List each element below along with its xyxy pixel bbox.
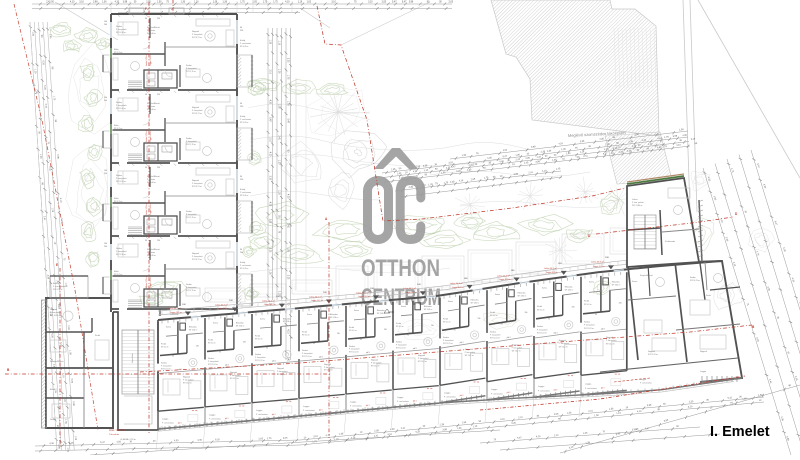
svg-text:WT: 11,76 m²: WT: 11,76 m² [186, 216, 196, 219]
svg-text:Előszoba: Előszoba [283, 318, 292, 320]
svg-text:P: kerámia: P: kerámia [147, 29, 155, 32]
svg-text:240: 240 [104, 100, 107, 102]
svg-text:pld 3: pld 3 [366, 352, 370, 354]
svg-text:Hrsz.: 8173/9: Hrsz.: 8173/9 [109, 428, 125, 432]
svg-text:Erkély: Erkély [240, 115, 245, 118]
svg-text:Loggia 10,9 m²: Loggia 10,9 m² [170, 311, 182, 314]
svg-text:Szoba: Szoba [186, 65, 193, 67]
svg-text:Előtér: Előtér [114, 48, 119, 51]
svg-text:pld 3: pld 3 [601, 329, 605, 331]
svg-text:4,30: 4,30 [269, 100, 271, 105]
svg-text:WT: 16,53 m²: WT: 16,53 m² [50, 314, 61, 317]
svg-text:Loggia 10,9 m²: Loggia 10,9 m² [217, 307, 229, 310]
svg-text:WT: 9,40 m²: WT: 9,40 m² [147, 32, 157, 35]
svg-text:90: 90 [240, 27, 242, 29]
svg-text:Szoba: Szoba [490, 331, 497, 333]
svg-text:Kamra: Kamra [213, 321, 218, 324]
svg-text:P: lam.parkett: P: lam.parkett [418, 357, 429, 360]
svg-text:Szoba: Szoba [116, 26, 123, 28]
svg-text:1,16: 1,16 [298, 1, 303, 3]
svg-text:Nappali: Nappali [277, 368, 285, 370]
svg-text:P: csm.kerámia: P: csm.kerámia [209, 417, 221, 420]
svg-text:P: lam.parkett: P: lam.parkett [186, 67, 197, 70]
svg-text:pld 3: pld 3 [178, 422, 182, 424]
svg-text:Szoba: Szoba [302, 350, 309, 352]
svg-text:90: 90 [548, 318, 550, 320]
svg-text:WT: 18,71 m²: WT: 18,71 m² [192, 36, 202, 39]
svg-text:Nappali: Nappali [192, 107, 200, 109]
svg-text:P: lam.parkett: P: lam.parkett [186, 286, 197, 289]
svg-text:WT: 12,01 m²: WT: 12,01 m² [302, 355, 312, 358]
svg-text:2,41: 2,41 [287, 357, 289, 362]
svg-text:4,30: 4,30 [174, 440, 179, 442]
svg-text:WT: 16,2 m²: WT: 16,2 m² [418, 360, 428, 363]
svg-text:250: 250 [157, 18, 160, 20]
svg-text:2,35: 2,35 [269, 176, 271, 181]
svg-text:WT: 11,76 m²: WT: 11,76 m² [186, 70, 196, 73]
svg-text:240: 240 [104, 246, 107, 248]
svg-text:Lakás 57,8 m²: Lakás 57,8 m² [145, 54, 148, 66]
svg-text:2/fő: 2/fő [337, 333, 340, 335]
svg-text:2/fő: 2/fő [196, 346, 199, 348]
svg-text:WT: 6,76 m²: WT: 6,76 m² [53, 288, 63, 291]
svg-text:WT: 12,01 m²: WT: 12,01 m² [161, 367, 171, 370]
svg-text:Kamra: Kamra [307, 313, 312, 316]
svg-text:Nappali: Nappali [192, 31, 200, 33]
svg-text:250: 250 [157, 94, 160, 96]
svg-text:Fürdő: Fürdő [95, 334, 100, 337]
svg-text:P: lam.parkett: P: lam.parkett [230, 374, 241, 377]
svg-text:Erkély: Erkély [53, 282, 60, 285]
svg-text:2/fő: 2/fő [525, 312, 528, 314]
svg-text:Lépcsőház: Lépcsőház [132, 353, 134, 363]
svg-text:Szoba: Szoba [584, 321, 591, 323]
svg-text:Lakás 57,8 m²: Lakás 57,8 m² [145, 276, 148, 288]
svg-text:4,10: 4,10 [285, 1, 290, 3]
svg-text:WT: 11,76 m²: WT: 11,76 m² [186, 143, 196, 146]
svg-text:3,98: 3,98 [123, 1, 128, 3]
svg-text:4,10: 4,10 [70, 1, 75, 3]
svg-text:1,36: 1,36 [269, 40, 271, 45]
svg-text:3,10: 3,10 [79, 1, 84, 3]
svg-text:pld 3: pld 3 [366, 405, 370, 407]
svg-text:1,20: 1,20 [278, 160, 280, 165]
svg-text:Szoba: Szoba [690, 277, 697, 279]
svg-text:WT: 9,40 m²: WT: 9,40 m² [147, 181, 157, 184]
svg-text:WT: 12,01 m²: WT: 12,01 m² [490, 337, 500, 340]
svg-text:P: lam.parkett: P: lam.parkett [584, 324, 595, 327]
svg-text:1,75: 1,75 [263, 1, 268, 3]
svg-text:5,47: 5,47 [100, 442, 105, 444]
svg-text:P: csm.kerámia: P: csm.kerámia [240, 119, 251, 121]
svg-text:P: lam.parkett: P: lam.parkett [396, 343, 407, 346]
svg-text:Lakás 44,3 m²: Lakás 44,3 m² [168, 307, 181, 310]
svg-text:1,36: 1,36 [213, 1, 218, 3]
svg-text:3,98: 3,98 [93, 1, 98, 3]
svg-text:Előszoba: Előszoba [377, 310, 386, 312]
svg-text:Fürdő: Fürdő [537, 305, 542, 308]
svg-text:pld 3: pld 3 [601, 388, 605, 390]
svg-text:P: lam.parkett: P: lam.parkett [192, 255, 203, 258]
svg-text:P: kerámia: P: kerámia [147, 105, 155, 108]
svg-text:pld 3: pld 3 [272, 414, 276, 416]
svg-text:2,35: 2,35 [269, 248, 271, 253]
svg-text:pld 3: pld 3 [554, 389, 558, 391]
svg-text:Fürdő: Fürdő [255, 334, 260, 337]
svg-text:1,36: 1,36 [181, 1, 186, 3]
svg-text:90: 90 [360, 339, 362, 341]
svg-text:pld 3: pld 3 [319, 356, 323, 358]
svg-text:WT: 12,01 m²: WT: 12,01 m² [584, 327, 594, 330]
svg-text:Erkély: Erkély [240, 39, 245, 42]
svg-text:Előszoba: Előszoba [471, 300, 480, 302]
svg-text:Loggia: Loggia [700, 371, 707, 373]
svg-text:Nappali: Nappali [700, 351, 707, 353]
svg-text:Szoba: Szoba [443, 337, 450, 339]
svg-text:E: E [56, 263, 58, 267]
svg-text:2/fő: 2/fő [384, 329, 387, 331]
svg-text:I. Emelet: I. Emelet [710, 424, 770, 440]
svg-text:2/fő: 2/fő [243, 342, 246, 344]
svg-text:Loggia: Loggia [585, 384, 592, 386]
svg-text:Lakás 44,3 m²: Lakás 44,3 m² [591, 261, 604, 264]
svg-text:2,35: 2,35 [287, 275, 289, 280]
svg-text:2/fő: 2/fő [290, 337, 293, 339]
svg-text:Szoba: Szoba [116, 248, 123, 250]
svg-text:Loggia 10,9 m²: Loggia 10,9 m² [593, 265, 605, 268]
svg-text:Erkély: Erkély [240, 261, 245, 264]
svg-text:Loggia: Loggia [538, 386, 545, 388]
svg-text:WT: 12,01 m²: WT: 12,01 m² [255, 359, 265, 362]
svg-text:4,30: 4,30 [287, 194, 289, 199]
svg-text:Fürdő: Fürdő [706, 295, 711, 297]
svg-text:Előtér: Előtér [114, 197, 119, 200]
svg-text:Loggia 10,9 m²: Loggia 10,9 m² [311, 299, 323, 302]
svg-text:Előszoba: Előszoba [565, 286, 574, 288]
svg-text:Kamra: Kamra [354, 309, 359, 312]
svg-text:WT: 16,2 m²: WT: 16,2 m² [606, 342, 616, 345]
svg-text:Loggia: Loggia [303, 406, 310, 408]
svg-text:P: csm.kerámia: P: csm.kerámia [53, 286, 65, 288]
svg-text:P: lam.parkett: P: lam.parkett [490, 334, 501, 337]
svg-text:P: csm.kerámia: P: csm.kerámia [397, 400, 409, 403]
svg-text:Fürdő: Fürdő [490, 311, 495, 314]
svg-text:Szoba: Szoba [255, 354, 262, 356]
svg-text:100: 100 [104, 243, 107, 245]
svg-text:Szoba: Szoba [396, 342, 403, 344]
svg-text:2/fő: 2/fő [431, 325, 434, 327]
svg-text:P: csm.kerámia: P: csm.kerámia [444, 395, 456, 398]
svg-text:WT: 16,2 m²: WT: 16,2 m² [371, 364, 381, 367]
svg-text:Közlekedő: Közlekedő [170, 314, 178, 316]
svg-text:WT: 11,76 m²: WT: 11,76 m² [186, 289, 196, 292]
svg-text:Kamra: Kamra [632, 281, 637, 283]
svg-text:WT: 16,23 m²: WT: 16,23 m² [690, 279, 700, 282]
svg-text:Előtér: Előtér [114, 270, 119, 273]
svg-text:P: lam.parkett: P: lam.parkett [208, 360, 219, 363]
svg-text:P: lam. parkett: P: lam. parkett [632, 201, 644, 204]
svg-text:Loggia 10,9 m²: Loggia 10,9 m² [546, 271, 558, 274]
svg-text:Nappali: Nappali [192, 180, 200, 182]
svg-text:Nappali: Nappali [183, 376, 191, 378]
svg-text:WT: 12,01 m²: WT: 12,01 m² [349, 351, 359, 354]
svg-text:240: 240 [104, 24, 107, 26]
svg-text:2/fő: 2/fő [619, 303, 622, 305]
svg-text:Loggia 6,45 m²: Loggia 6,45 m² [149, 276, 152, 288]
svg-text:Társasház: Társasház [109, 433, 119, 436]
svg-text:pld 3: pld 3 [554, 332, 558, 334]
svg-text:1,75: 1,75 [273, 1, 278, 3]
svg-text:90: 90 [501, 324, 503, 326]
svg-text:P: csm.kerámia: P: csm.kerámia [256, 413, 268, 416]
svg-text:Konyha/Étkező: Konyha/Étkező [50, 360, 64, 363]
svg-text:WT: 10,96 m²: WT: 10,96 m² [116, 107, 126, 110]
svg-text:Lakás 57,8 m²: Lakás 57,8 m² [145, 130, 148, 142]
svg-text:90: 90 [313, 343, 315, 345]
svg-text:2,05: 2,05 [283, 438, 288, 440]
svg-text:Lakás 44,3 m²: Lakás 44,3 m² [544, 267, 557, 270]
svg-text:OTTHON: OTTHON [361, 255, 440, 282]
svg-text:3,10: 3,10 [269, 69, 271, 74]
svg-text:1,36: 1,36 [269, 270, 271, 275]
svg-text:Fürdő: Fürdő [396, 322, 401, 325]
svg-text:100: 100 [104, 21, 107, 23]
svg-text:Előtér: Előtér [114, 124, 119, 127]
svg-text:Loggia 10,9 m²: Loggia 10,9 m² [405, 291, 417, 294]
svg-text:2,41: 2,41 [287, 223, 289, 228]
svg-text:90: 90 [240, 176, 242, 178]
svg-text:P: lam.parkett: P: lam.parkett [371, 362, 382, 365]
svg-text:2,05: 2,05 [258, 438, 263, 440]
svg-text:P: kerámia: P: kerámia [147, 178, 155, 181]
svg-text:1,50: 1,50 [116, 441, 121, 443]
svg-text:90: 90 [172, 356, 174, 358]
svg-text:P: lam.parkett: P: lam.parkett [116, 177, 127, 180]
svg-text:P: csm.kerámia: P: csm.kerámia [585, 387, 597, 390]
svg-text:P: csm.kerámia: P: csm.kerámia [162, 422, 174, 425]
svg-text:Előszoba: Előszoba [330, 314, 339, 316]
svg-text:Nappali: Nappali [50, 309, 58, 311]
svg-text:P: lam.parkett: P: lam.parkett [161, 364, 172, 367]
svg-text:100: 100 [104, 97, 107, 99]
svg-text:3,10: 3,10 [331, 1, 336, 3]
svg-text:Kamra: Kamra [589, 281, 594, 284]
svg-text:3,98: 3,98 [409, 1, 414, 3]
svg-text:1,36: 1,36 [278, 69, 280, 74]
svg-text:90: 90 [145, 240, 147, 242]
svg-text:90: 90 [407, 335, 409, 337]
svg-text:2,41: 2,41 [278, 136, 280, 141]
svg-text:Lakás 44,3 m²: Lakás 44,3 m² [497, 275, 510, 278]
svg-text:pld 3: pld 3 [225, 365, 229, 367]
svg-text:Kamra: Kamra [495, 293, 500, 296]
svg-text:Előszoba: Előszoba [518, 293, 527, 295]
svg-text:P: csm.kerámia: P: csm.kerámia [538, 390, 550, 393]
svg-text:P: csm.kerámia: P: csm.kerámia [350, 404, 362, 407]
svg-text:P: csm.kerámia: P: csm.kerámia [240, 192, 251, 194]
svg-text:Előszoba: Előszoba [236, 322, 245, 324]
svg-text:Nappali: Nappali [418, 355, 426, 357]
svg-text:P: lam.parkett: P: lam.parkett [192, 109, 203, 112]
svg-text:P: csm.kerámia: P: csm.kerámia [240, 43, 251, 45]
svg-text:2,05: 2,05 [269, 219, 271, 224]
svg-text:Szoba: Szoba [116, 102, 123, 104]
svg-text:Kamra: Kamra [166, 325, 171, 328]
svg-text:pld 3: pld 3 [507, 337, 511, 339]
svg-text:Loggia: Loggia [350, 402, 357, 404]
svg-text:Szoba: Szoba [186, 284, 193, 286]
svg-text:Lakás 44,3 m²: Lakás 44,3 m² [450, 282, 463, 285]
svg-text:P: lam.parkett: P: lam.parkett [465, 351, 476, 354]
svg-text:1,36: 1,36 [102, 1, 107, 3]
svg-text:P: csm.kerámia: P: csm.kerámia [240, 265, 251, 267]
svg-text:WT: 18,71 m²: WT: 18,71 m² [192, 112, 202, 115]
svg-text:WT: 16,2 m²: WT: 16,2 m² [559, 345, 569, 348]
svg-text:P: lam.parkett: P: lam.parkett [349, 348, 360, 351]
svg-text:P: lam.parkett: P: lam.parkett [116, 28, 127, 31]
svg-text:Loggia: Loggia [444, 392, 451, 394]
svg-text:1,75: 1,75 [267, 438, 272, 440]
svg-text:90: 90 [145, 18, 147, 20]
svg-text:1,50: 1,50 [287, 248, 289, 253]
svg-text:3,10: 3,10 [368, 1, 373, 3]
svg-text:P: csm.kerámia: P: csm.kerámia [303, 409, 315, 412]
svg-text:WT: 19,31 m²: WT: 19,31 m² [648, 353, 658, 356]
svg-text:Lakás 57,8 m²: Lakás 57,8 m² [145, 203, 148, 215]
svg-text:WT: 9,40 m²: WT: 9,40 m² [147, 108, 157, 111]
svg-text:2,05: 2,05 [382, 1, 387, 3]
svg-text:P: csm.kerámia: P: csm.kerámia [640, 382, 652, 385]
svg-text:WT: 18,71 m²: WT: 18,71 m² [192, 258, 202, 261]
svg-text:Loggia: Loggia [491, 389, 498, 391]
svg-text:2/fő: 2/fő [478, 318, 481, 320]
svg-text:WT: 12,01 m²: WT: 12,01 m² [537, 332, 547, 335]
svg-text:90: 90 [595, 314, 597, 316]
svg-text:Szoba: Szoba [161, 362, 168, 364]
svg-text:Lakás 44,3 m²: Lakás 44,3 m² [262, 299, 275, 302]
svg-text:2/fő: 2/fő [572, 307, 575, 309]
svg-text:Loggia 10,9 m²: Loggia 10,9 m² [358, 295, 370, 298]
svg-text:P: lam.parkett: P: lam.parkett [116, 250, 127, 253]
svg-text:3,10: 3,10 [269, 137, 271, 142]
svg-text:4,30: 4,30 [49, 443, 54, 445]
svg-text:Konyha/Étkező: Konyha/Étkező [640, 274, 653, 277]
svg-text:Loggia 10,9 m²: Loggia 10,9 m² [452, 286, 464, 289]
svg-text:4,30: 4,30 [269, 202, 271, 207]
svg-text:Konyha/Étkező: Konyha/Étkező [147, 248, 160, 251]
svg-text:4,30: 4,30 [197, 440, 202, 442]
svg-text:5,47: 5,47 [287, 119, 289, 124]
svg-text:2,35: 2,35 [287, 58, 289, 63]
svg-text:Loggia 6,45 m²: Loggia 6,45 m² [149, 54, 152, 66]
svg-text:90: 90 [240, 103, 242, 105]
svg-text:250: 250 [240, 30, 243, 32]
svg-text:Előtér: Előtér [50, 388, 56, 391]
svg-text:90: 90 [240, 249, 242, 251]
svg-text:WT: 18,71 m²: WT: 18,71 m² [192, 185, 202, 188]
svg-text:Loggia: Loggia [209, 415, 216, 417]
svg-text:Szoba: Szoba [186, 211, 193, 213]
svg-text:pld 3: pld 3 [507, 392, 511, 394]
svg-text:WT: 12,01 m²: WT: 12,01 m² [396, 346, 406, 349]
svg-text:pld 3: pld 3 [178, 369, 182, 371]
svg-text:Szoba: Szoba [116, 175, 123, 177]
svg-text:Nappali: Nappali [192, 253, 200, 255]
svg-text:WT: 12,01 m²: WT: 12,01 m² [208, 363, 218, 366]
svg-text:1,20: 1,20 [278, 190, 280, 195]
svg-text:P: lam.parkett: P: lam.parkett [559, 342, 570, 345]
svg-text:2,05: 2,05 [449, 1, 454, 3]
svg-text:P: lam.parkett: P: lam.parkett [255, 356, 266, 359]
svg-text:Fürdő: Fürdő [302, 330, 307, 333]
svg-text:Loggia: Loggia [397, 397, 404, 399]
svg-text:Szoba: Szoba [186, 138, 193, 140]
svg-text:pld 3: pld 3 [413, 348, 417, 350]
svg-text:P: lam.parkett: P: lam.parkett [512, 346, 523, 349]
svg-text:+3,60 Blk: 2,76 m: +3,60 Blk: 2,76 m [120, 439, 136, 441]
svg-text:Kamra: Kamra [542, 286, 547, 289]
svg-text:6,20: 6,20 [215, 439, 220, 441]
svg-text:Loggia 6,45 m²: Loggia 6,45 m² [149, 203, 152, 215]
svg-text:P: lam.parkett: P: lam.parkett [277, 370, 288, 373]
svg-text:P: lam.parkett: P: lam.parkett [443, 339, 454, 342]
svg-text:4,30: 4,30 [269, 152, 271, 157]
svg-text:1,50: 1,50 [157, 1, 162, 3]
svg-text:Loggia: Loggia [256, 410, 263, 412]
svg-text:WT: 16,2 m²: WT: 16,2 m² [465, 354, 475, 357]
svg-text:Fürdő: Fürdő [349, 326, 354, 329]
svg-text:Lakás 44,3 m²: Lakás 44,3 m² [403, 287, 416, 290]
svg-text:250: 250 [157, 167, 160, 169]
svg-text:Lakás 44,3 m²: Lakás 44,3 m² [215, 303, 228, 306]
svg-text:WT: 16,2 m²: WT: 16,2 m² [230, 377, 240, 380]
svg-text:4,10: 4,10 [287, 329, 289, 334]
svg-text:pld 3: pld 3 [272, 361, 276, 363]
svg-text:Lakás: Lakás [632, 199, 638, 201]
svg-text:P: lam.parkett: P: lam.parkett [116, 104, 127, 107]
svg-text:WT: 21,84 m²: WT: 21,84 m² [632, 204, 643, 207]
svg-text:250: 250 [240, 179, 243, 181]
svg-text:Lakás 44,3 m²: Lakás 44,3 m² [356, 291, 369, 294]
svg-text:Szoba: Szoba [537, 326, 544, 328]
svg-text:1,75: 1,75 [240, 1, 245, 3]
svg-text:90: 90 [454, 329, 456, 331]
svg-text:Loggia 10,9 m²: Loggia 10,9 m² [499, 278, 511, 281]
svg-text:Erkély: Erkély [240, 188, 245, 191]
svg-text:P: lam.parkett: P: lam.parkett [537, 328, 548, 331]
svg-text:5,47: 5,47 [269, 117, 271, 122]
svg-text:Loggia 10,9 m²: Loggia 10,9 m² [264, 303, 276, 306]
svg-text:90: 90 [145, 94, 147, 96]
svg-text:1,75: 1,75 [287, 75, 289, 80]
svg-text:Fürdő: Fürdő [443, 317, 448, 320]
svg-text:Fürdőszoba: Fürdőszoba [665, 240, 676, 243]
svg-text:Kamra: Kamra [260, 317, 265, 320]
svg-text:Előszoba: Előszoba [612, 282, 621, 284]
svg-text:250: 250 [240, 252, 243, 254]
svg-text:1,16: 1,16 [194, 1, 199, 3]
svg-text:250: 250 [240, 106, 243, 108]
svg-text:Szoba: Szoba [50, 419, 57, 421]
svg-text:1,16: 1,16 [69, 443, 74, 445]
svg-text:WT: 16,2 m²: WT: 16,2 m² [512, 349, 522, 352]
svg-text:pld 3: pld 3 [319, 409, 323, 411]
svg-text:WT: 16,2 m²: WT: 16,2 m² [183, 381, 193, 384]
svg-text:Fürdő: Fürdő [208, 339, 213, 342]
svg-text:Loggia: Loggia [162, 419, 169, 421]
svg-text:P: lam.parkett: P: lam.parkett [183, 378, 194, 381]
svg-text:Loggia 6,45 m²: Loggia 6,45 m² [149, 130, 152, 142]
